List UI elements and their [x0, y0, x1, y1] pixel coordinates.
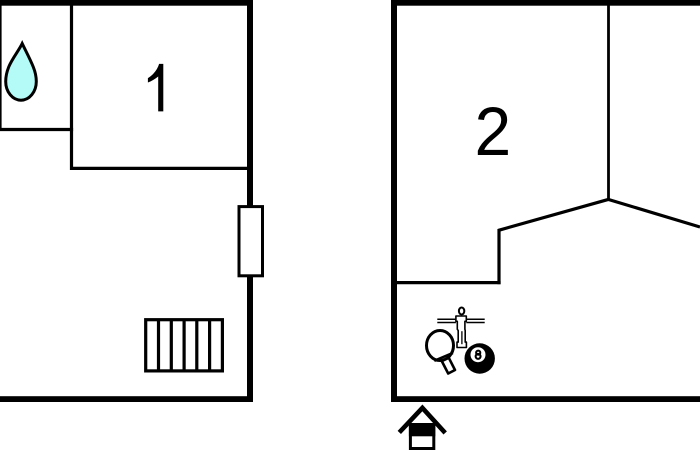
svg-text:2: 2 — [475, 94, 512, 171]
